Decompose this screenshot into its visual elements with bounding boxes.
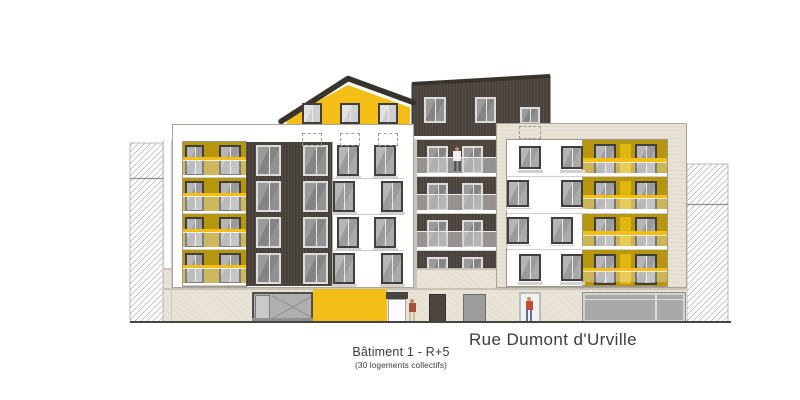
storefront-door <box>255 295 270 320</box>
frame-shadow <box>414 140 417 288</box>
service-door <box>429 294 446 322</box>
hidden-window-outline <box>340 133 360 146</box>
floor-line <box>332 250 403 251</box>
floor-slab <box>507 246 667 251</box>
apartment-window <box>303 181 328 212</box>
apartment-window <box>303 253 328 284</box>
apartment-window <box>333 253 355 284</box>
shop-transom <box>583 299 685 300</box>
apartment-window <box>374 145 396 176</box>
floor-slab <box>183 175 246 178</box>
floor-line <box>332 214 403 215</box>
apartment-window <box>519 146 541 169</box>
ground-line <box>130 321 731 323</box>
building-sublabel: (30 logements collectifs) <box>301 360 501 370</box>
apartment-window <box>381 181 403 212</box>
person-torso <box>409 303 416 312</box>
window-sill <box>332 284 357 287</box>
balcony-glass-railing <box>183 160 246 175</box>
building-label: Bâtiment 1 - R+5 <box>301 345 501 359</box>
apartment-window <box>551 217 573 244</box>
balcony-glass-railing <box>414 231 496 247</box>
apartment-window <box>561 146 583 169</box>
apartment-window <box>561 254 583 281</box>
elevation-drawing: Rue Dumont d'Urville Bâtiment 1 - R+5 (3… <box>0 0 800 400</box>
hidden-window-outline <box>378 133 398 146</box>
floor-slab <box>507 173 667 178</box>
street-wall-molding <box>414 268 496 270</box>
balcony-glass-railing <box>183 232 246 247</box>
apartment-window <box>507 180 529 207</box>
person-balcony <box>452 147 462 173</box>
floor-line <box>332 178 403 179</box>
apartment-window <box>561 180 583 207</box>
apartment-window <box>303 217 328 248</box>
facades <box>0 0 800 400</box>
hidden-window-outline <box>519 126 541 139</box>
person-torso <box>453 151 461 161</box>
floor-slab <box>507 209 667 214</box>
apartment-window <box>519 254 541 281</box>
apartment-window <box>303 145 328 176</box>
apartment-window <box>337 145 359 176</box>
apartment-window <box>507 217 529 244</box>
apartment-window <box>256 253 281 284</box>
hidden-window-outline <box>302 133 322 146</box>
background-window <box>475 97 496 123</box>
apartment-window <box>256 217 281 248</box>
person-doorway <box>524 297 534 322</box>
floor-slab <box>183 283 246 286</box>
balcony-slab <box>414 210 496 214</box>
apartment-window <box>337 217 359 248</box>
gable-window <box>340 103 360 124</box>
balcony-glass-railing <box>414 194 496 210</box>
apartment-window <box>256 181 281 212</box>
person-street <box>407 299 417 322</box>
balcony-parapet <box>414 136 496 140</box>
window-sill <box>380 284 405 287</box>
apartment-window <box>256 145 281 176</box>
window-sill <box>560 282 585 285</box>
balcony-glass-railing <box>183 268 246 283</box>
person-legs <box>454 161 461 171</box>
floor-slab <box>183 211 246 214</box>
shop-mullion <box>655 293 657 322</box>
balcony-glass-railing <box>583 198 667 209</box>
apartment-window <box>374 217 396 248</box>
entrance-door <box>388 299 406 322</box>
service-door <box>463 294 486 322</box>
door-lintel <box>386 292 408 299</box>
gable-window <box>302 103 322 124</box>
balcony-slab <box>414 173 496 177</box>
gable-window <box>378 103 398 124</box>
street-wall-molding <box>163 288 687 290</box>
person-torso <box>526 301 533 310</box>
window-sill <box>518 282 543 285</box>
balcony-glass-railing <box>583 162 667 173</box>
wall-edge-line <box>163 140 164 322</box>
balcony-slab <box>414 247 496 251</box>
floor-slab <box>183 247 246 250</box>
background-window <box>424 97 446 123</box>
apartment-window <box>381 253 403 284</box>
balcony-glass-railing <box>583 271 667 282</box>
storefront-right <box>583 293 685 322</box>
background-window <box>520 107 540 124</box>
yellow-street-panel <box>313 289 387 322</box>
balcony-glass-railing <box>183 196 246 211</box>
apartment-window <box>333 181 355 212</box>
balcony-glass-railing <box>583 235 667 246</box>
